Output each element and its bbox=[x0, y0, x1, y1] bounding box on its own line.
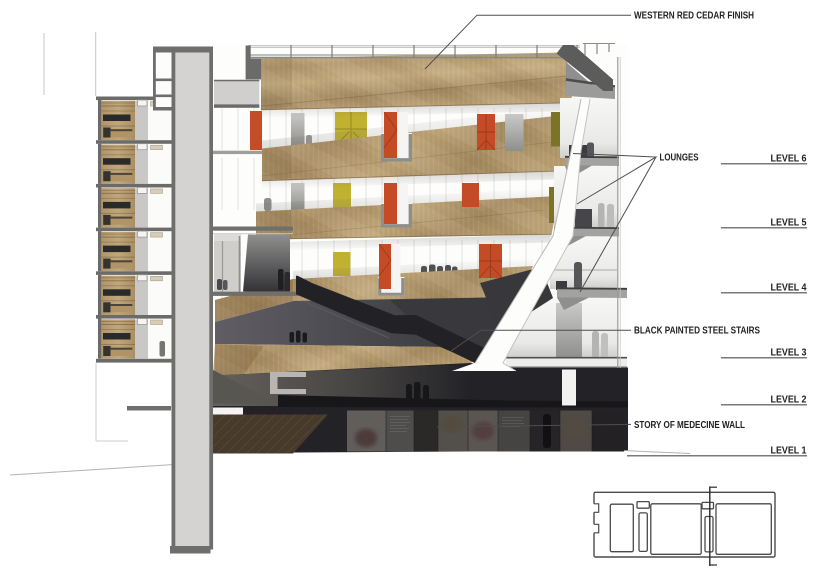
svg-text:STORY OF MEDECINE WALL: STORY OF MEDECINE WALL bbox=[634, 420, 746, 431]
svg-text:LEVEL 3: LEVEL 3 bbox=[771, 347, 807, 358]
svg-text:LEVEL 4: LEVEL 4 bbox=[771, 282, 807, 293]
svg-text:LEVEL 6: LEVEL 6 bbox=[771, 153, 807, 164]
svg-text:LEVEL 5: LEVEL 5 bbox=[771, 217, 807, 228]
svg-text:LEVEL 1: LEVEL 1 bbox=[771, 445, 807, 456]
svg-text:LOUNGES: LOUNGES bbox=[660, 152, 699, 163]
svg-text:WESTERN RED CEDAR FINISH: WESTERN RED CEDAR FINISH bbox=[634, 10, 754, 21]
svg-text:BLACK PAINTED STEEL STAIRS: BLACK PAINTED STEEL STAIRS bbox=[634, 326, 760, 337]
svg-text:LEVEL 2: LEVEL 2 bbox=[771, 394, 807, 405]
